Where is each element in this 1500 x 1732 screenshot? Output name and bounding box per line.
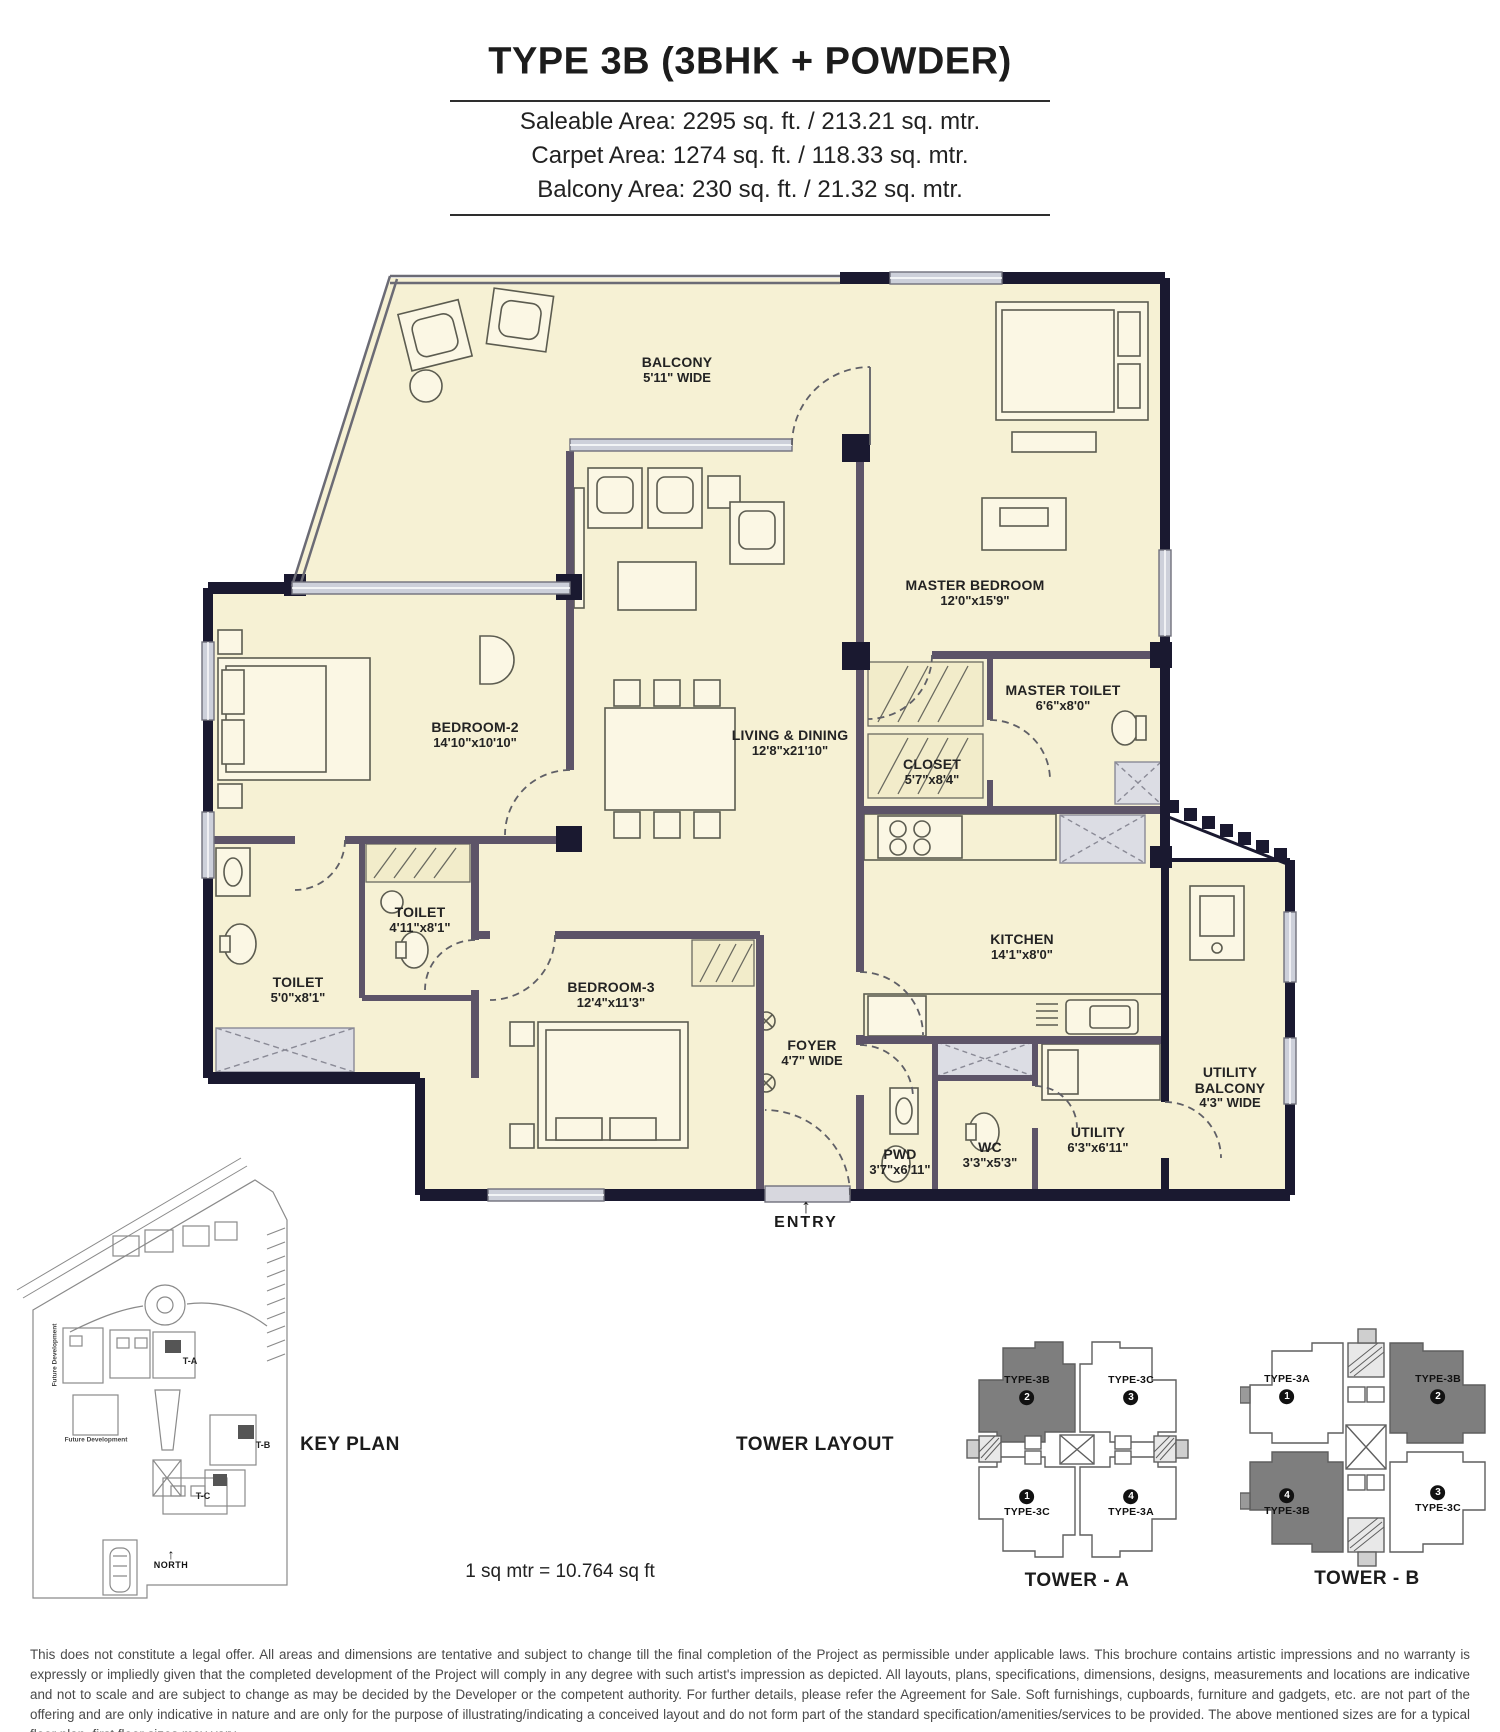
- room-label-pwd: PWD 3'7"x6'11": [869, 1147, 930, 1177]
- unit-number-badge: 1: [1020, 1489, 1035, 1504]
- crenellation: [1166, 800, 1287, 864]
- north-arrow-icon: ↑: [154, 1548, 189, 1560]
- tower-a-drawing: [965, 1332, 1190, 1567]
- unit-number-badge: 3: [1431, 1485, 1446, 1500]
- tower-b-unit-1: TYPE-3A 1: [1264, 1374, 1310, 1404]
- north-indicator: ↑ NORTH: [154, 1548, 189, 1570]
- tower-b-caption: TOWER - B: [1314, 1568, 1419, 1590]
- unit-number-badge: 2: [1431, 1389, 1446, 1404]
- room-label-master-bedroom: MASTER BEDROOM 12'0"x15'9": [906, 578, 1045, 608]
- entry-label: ↑ ENTRY: [774, 1200, 838, 1232]
- header-divider-top: [450, 100, 1050, 102]
- future-development-label-vertical: Future Development: [52, 1324, 59, 1387]
- unit-number-badge: 3: [1124, 1390, 1139, 1405]
- room-label-living-dining: LIVING & DINING 12'8"x21'10": [732, 728, 849, 758]
- tower-a-unit-4: TYPE-3A 4: [1108, 1489, 1154, 1519]
- tower-b-layout: TYPE-3A 1 TYPE-3B 2 TYPE-3B 4 TYPE-3C 3 …: [1240, 1325, 1495, 1590]
- unit-number-badge: 2: [1020, 1390, 1035, 1405]
- unit-number-badge: 4: [1124, 1489, 1139, 1504]
- tower-b-unit-4: TYPE-3B 4: [1264, 1488, 1310, 1518]
- room-label-bedroom-2: BEDROOM-2 14'10"x10'10": [431, 720, 518, 750]
- room-label-wc: WC 3'3"x5'3": [963, 1140, 1018, 1170]
- brochure-page: TYPE 3B (3BHK + POWDER) Saleable Area: 2…: [0, 0, 1500, 1732]
- key-plan: T-A T-B T-C Future Development Future De…: [15, 1140, 315, 1605]
- tower-layout-heading: TOWER LAYOUT: [736, 1434, 894, 1456]
- room-label-toilet-1: TOILET 4'11"x8'1": [389, 905, 450, 935]
- future-development-label: Future Development: [65, 1437, 128, 1444]
- tower-b-drawing: [1240, 1325, 1495, 1570]
- room-label-foyer: FOYER 4'7" WIDE: [781, 1038, 842, 1068]
- room-label-kitchen: KITCHEN 14'1"x8'0": [990, 932, 1054, 962]
- unit-number-badge: 1: [1280, 1389, 1295, 1404]
- tower-b-unit-2: TYPE-3B 2: [1415, 1374, 1461, 1404]
- entry-arrow-icon: ↑: [774, 1200, 838, 1214]
- tower-a-caption: TOWER - A: [1025, 1570, 1130, 1592]
- room-label-master-toilet: MASTER TOILET 6'6"x8'0": [1005, 683, 1120, 713]
- tower-a-unit-1: TYPE-3C 1: [1004, 1489, 1050, 1519]
- key-plan-tower-c-label: T-C: [196, 1491, 211, 1501]
- room-label-balcony: BALCONY 5'11" WIDE: [642, 355, 713, 385]
- key-plan-tower-b-label: T-B: [256, 1440, 271, 1450]
- key-plan-tower-a-label: T-A: [183, 1356, 198, 1366]
- key-plan-heading: KEY PLAN: [300, 1434, 400, 1456]
- balcony-area-text: Balcony Area: 230 sq. ft. / 21.32 sq. mt…: [537, 176, 963, 204]
- room-label-utility-balcony: UTILITY BALCONY 4'3" WIDE: [1183, 1065, 1277, 1111]
- room-label-utility: UTILITY 6'3"x6'11": [1067, 1125, 1128, 1155]
- room-label-toilet-2: TOILET 5'0"x8'1": [271, 975, 326, 1005]
- key-plan-drawing: [15, 1140, 315, 1605]
- tower-a-unit-2: TYPE-3B 2: [1004, 1375, 1050, 1405]
- room-label-bedroom-3: BEDROOM-3 12'4"x11'3": [567, 980, 654, 1010]
- tower-a-unit-3: TYPE-3C 3: [1108, 1375, 1154, 1405]
- saleable-area-text: Saleable Area: 2295 sq. ft. / 213.21 sq.…: [520, 108, 980, 136]
- page-title: TYPE 3B (3BHK + POWDER): [488, 41, 1012, 84]
- unit-number-badge: 4: [1280, 1488, 1295, 1503]
- disclaimer-text: This does not constitute a legal offer. …: [30, 1645, 1470, 1732]
- room-label-closet: CLOSET 5'7"x8'4": [903, 757, 961, 787]
- carpet-area-text: Carpet Area: 1274 sq. ft. / 118.33 sq. m…: [531, 142, 968, 170]
- header-divider-bottom: [450, 214, 1050, 216]
- tower-a-layout: TYPE-3B 2 TYPE-3C 3 TYPE-3C 1 TYPE-3A 4 …: [965, 1332, 1190, 1582]
- tower-b-unit-3: TYPE-3C 3: [1415, 1485, 1461, 1515]
- floor-plan: BALCONY 5'11" WIDE MASTER BEDROOM 12'0"x…: [190, 250, 1310, 1240]
- scale-note: 1 sq mtr = 10.764 sq ft: [465, 1561, 655, 1583]
